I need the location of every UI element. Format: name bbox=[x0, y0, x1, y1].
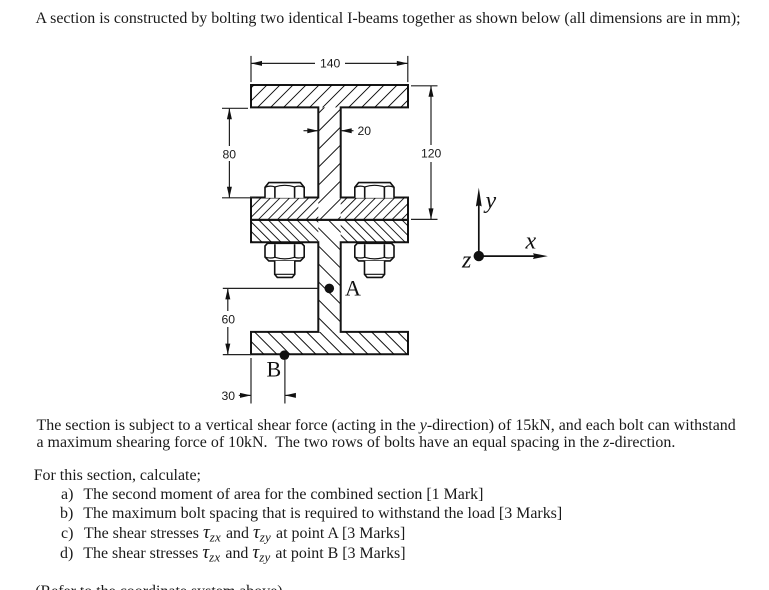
svg-text:30: 30 bbox=[222, 389, 236, 403]
svg-text:120: 120 bbox=[421, 146, 442, 160]
svg-text:A: A bbox=[345, 276, 361, 301]
svg-text:60: 60 bbox=[222, 313, 236, 327]
svg-text:20: 20 bbox=[358, 124, 372, 138]
svg-text:z: z bbox=[461, 248, 472, 274]
svg-text:y: y bbox=[484, 188, 497, 214]
svg-text:140: 140 bbox=[320, 57, 341, 71]
svg-text:x: x bbox=[525, 229, 537, 255]
svg-text:80: 80 bbox=[223, 147, 237, 161]
svg-text:B: B bbox=[267, 356, 282, 381]
